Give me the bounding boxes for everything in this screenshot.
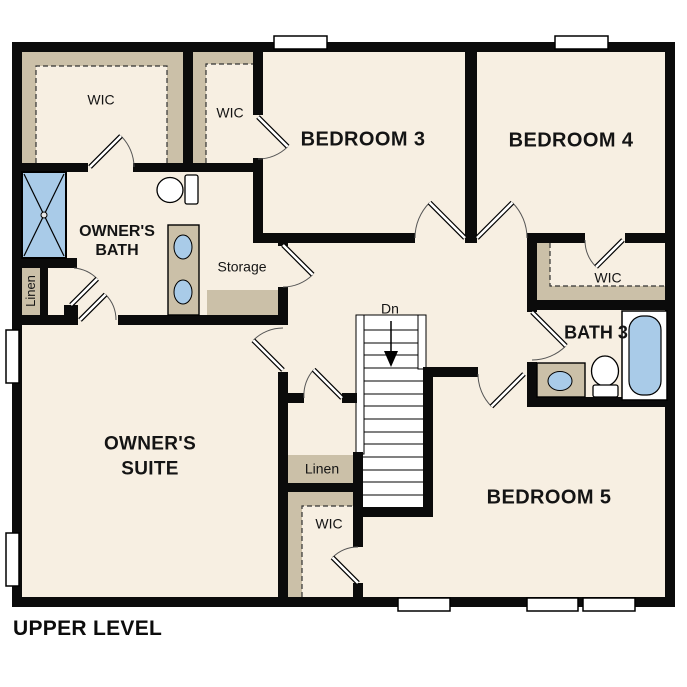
wall-exterior-left (12, 42, 22, 607)
storage-shelf (207, 290, 278, 315)
label-owner-bath: OWNER'S BATH (79, 222, 155, 260)
window (6, 533, 19, 586)
label-linen-hall: Linen (305, 462, 339, 477)
label-wic-owner: WIC (87, 93, 114, 108)
stair-rail-right (418, 315, 426, 369)
label-wic-bedroom5: WIC (315, 517, 342, 532)
window (583, 598, 635, 611)
floor-plan: WIC WIC BEDROOM 3 BEDROOM 4 OWNER'S BATH… (0, 0, 687, 687)
toilet-bowl-owner (157, 178, 183, 203)
shower-drain (41, 212, 47, 218)
toilet-tank-owner (185, 175, 198, 204)
window (6, 330, 19, 383)
plan-title: UPPER LEVEL (13, 617, 162, 641)
sink-bath3 (548, 372, 572, 391)
label-bath3: BATH 3 (564, 324, 628, 343)
label-linen-bath: Linen (24, 275, 38, 307)
staircase (356, 315, 426, 509)
label-bedroom4: BEDROOM 4 (509, 131, 634, 152)
bathtub (629, 316, 661, 395)
label-bedroom5: BEDROOM 5 (487, 488, 612, 509)
toilet-bowl-bath3 (592, 356, 619, 386)
label-wic-bedroom4: WIC (594, 271, 621, 286)
label-stairs-dn: Dn (381, 302, 399, 317)
window (527, 598, 578, 611)
toilet-tank-bath3 (593, 385, 618, 397)
window (555, 36, 608, 49)
sink-owner-1 (174, 235, 192, 259)
window (398, 598, 450, 611)
label-owner-suite: OWNER'S SUITE (104, 432, 196, 481)
label-storage: Storage (217, 260, 266, 275)
label-wic-bedroom3: WIC (216, 106, 243, 121)
stair-rail-left (356, 315, 364, 454)
label-bedroom3: BEDROOM 3 (301, 130, 426, 151)
sink-owner-2 (174, 280, 192, 304)
window (274, 36, 327, 49)
